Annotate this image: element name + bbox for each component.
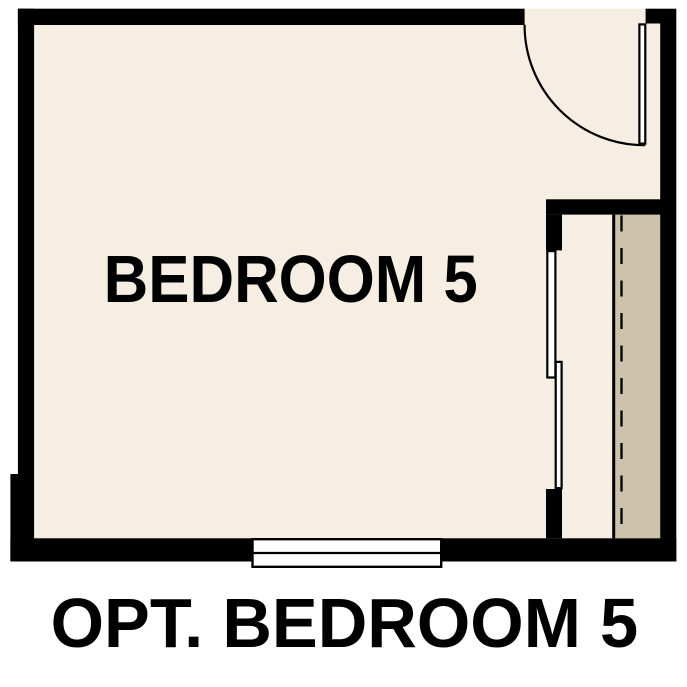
svg-text:OPT. BEDROOM 5: OPT. BEDROOM 5 bbox=[51, 583, 639, 662]
svg-text:BEDROOM 5: BEDROOM 5 bbox=[104, 242, 478, 317]
